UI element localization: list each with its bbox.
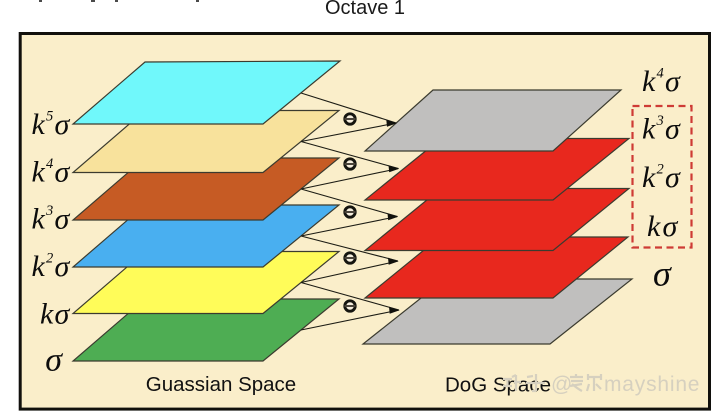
svg-text:mayshine: mayshine [604, 373, 700, 396]
svg-text:σ: σ [653, 254, 672, 294]
svg-text:kσ: kσ [40, 298, 71, 331]
svg-text:Octave 1: Octave 1 [325, 0, 405, 19]
svg-text:σ: σ [45, 341, 63, 378]
svg-text:@: @ [551, 373, 573, 396]
svg-text:Guassian Space: Guassian Space [146, 373, 296, 396]
svg-text:kσ: kσ [647, 210, 680, 243]
